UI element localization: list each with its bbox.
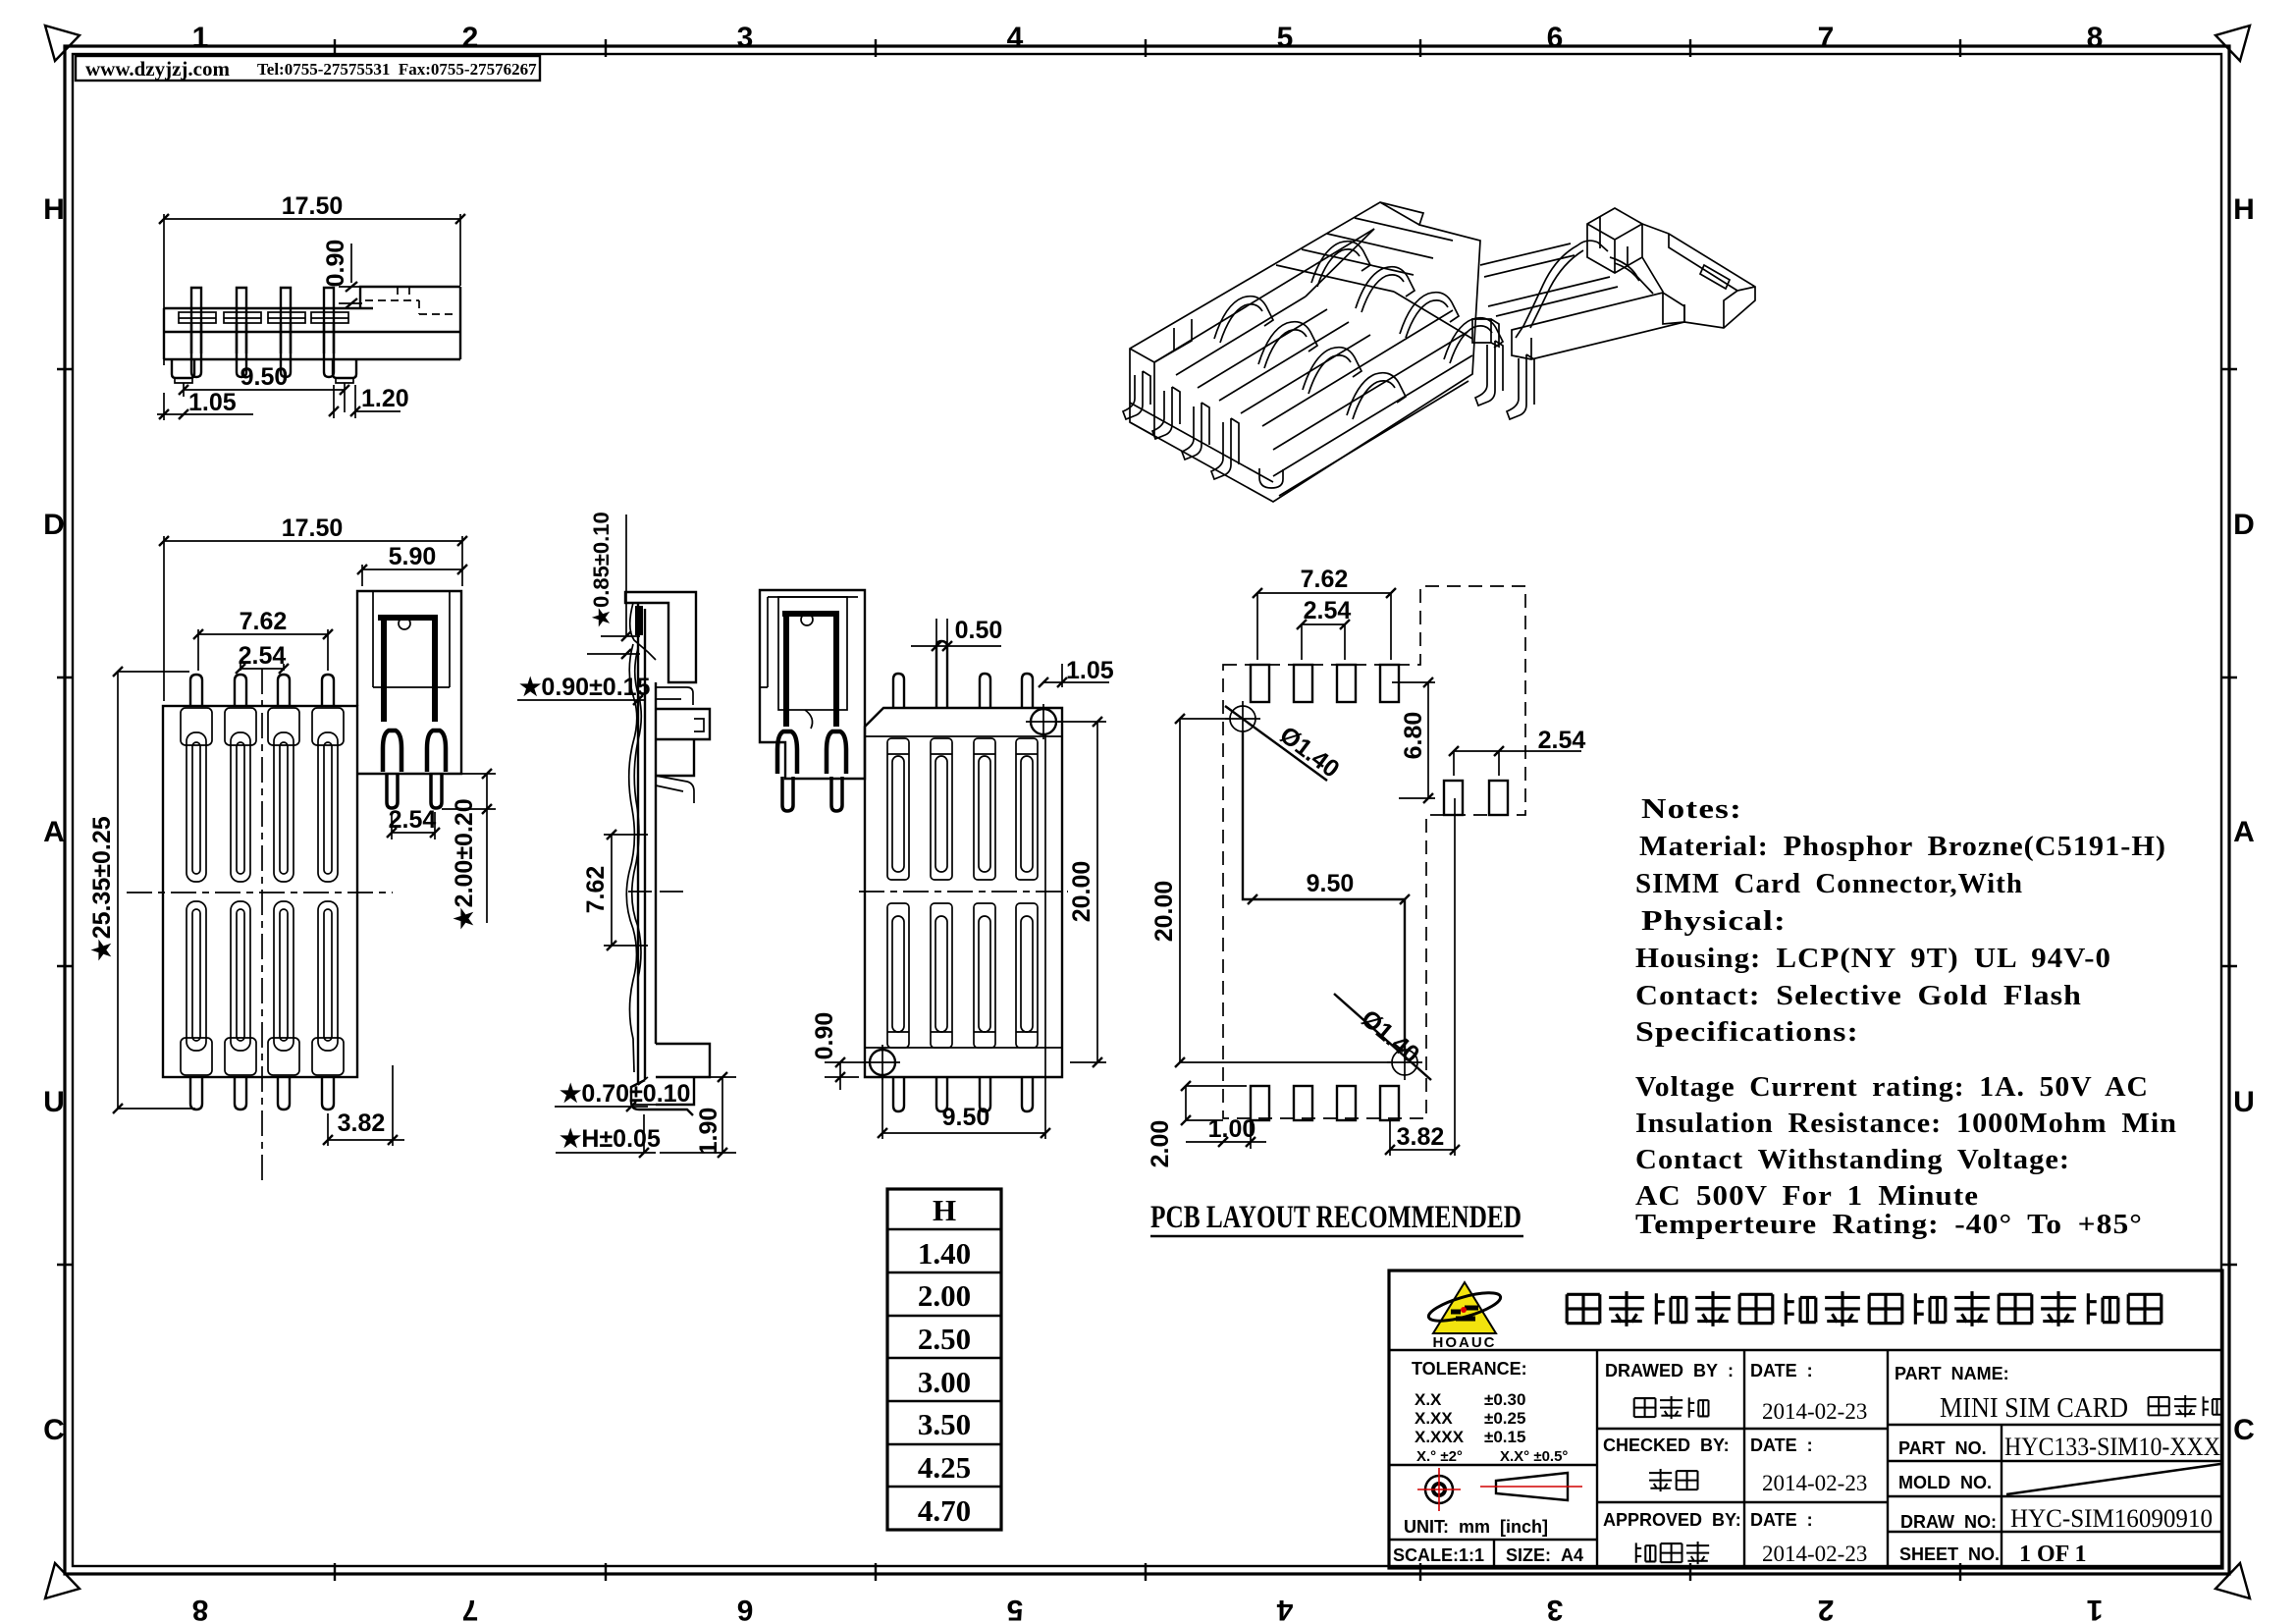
svg-text:7.62: 7.62: [582, 866, 610, 914]
svg-text:DRAWED BY :: DRAWED BY :: [1605, 1361, 1734, 1380]
svg-text:4: 4: [1007, 22, 1024, 54]
svg-text:2.54: 2.54: [1304, 597, 1352, 624]
svg-text:8: 8: [192, 1594, 209, 1624]
svg-text:3.00: 3.00: [918, 1365, 971, 1399]
svg-text:3.50: 3.50: [918, 1407, 971, 1441]
svg-text:2.50: 2.50: [918, 1322, 971, 1356]
svg-text:H: H: [43, 193, 65, 226]
svg-text:HOAUC: HOAUC: [1433, 1334, 1497, 1351]
svg-text:HYC-SIM16090910: HYC-SIM16090910: [2010, 1504, 2213, 1533]
svg-text:1.00: 1.00: [1208, 1115, 1256, 1143]
svg-text:Voltage Current rating: 1A. 50: Voltage Current rating: 1A. 50V AC: [1635, 1071, 2149, 1103]
svg-text:4.25: 4.25: [918, 1450, 971, 1485]
svg-text:9.50: 9.50: [240, 363, 289, 391]
svg-text:DATE :: DATE :: [1750, 1510, 1813, 1530]
svg-text:7: 7: [462, 1594, 479, 1624]
svg-text:3.82: 3.82: [1397, 1123, 1445, 1151]
svg-text:PART NO.: PART NO.: [1898, 1438, 1987, 1458]
svg-text:2.00: 2.00: [918, 1278, 971, 1313]
svg-text:1.20: 1.20: [361, 385, 409, 412]
svg-text:3: 3: [737, 22, 754, 54]
svg-text:6.80: 6.80: [1400, 712, 1427, 760]
svg-text:7: 7: [1818, 22, 1835, 54]
svg-text:SHEET NO.: SHEET NO.: [1899, 1544, 2000, 1564]
svg-text:3: 3: [1547, 1594, 1564, 1624]
svg-text:17.50: 17.50: [282, 192, 344, 220]
svg-text:HYC133-SIM10-XXX: HYC133-SIM10-XXX: [2004, 1433, 2220, 1461]
svg-text:★0.90±0.15: ★0.90±0.15: [519, 674, 651, 701]
svg-text:★25.35±0.25: ★25.35±0.25: [88, 816, 116, 960]
svg-text:C: C: [43, 1414, 65, 1446]
svg-text:2.54: 2.54: [1538, 727, 1586, 754]
svg-text:4: 4: [1276, 1594, 1293, 1624]
svg-text:17.50: 17.50: [282, 514, 344, 542]
svg-text:3.82: 3.82: [338, 1110, 386, 1137]
svg-text:7.62: 7.62: [1301, 566, 1349, 593]
svg-text:www.dzyjzj.com: www.dzyjzj.com: [85, 57, 230, 81]
svg-text:1.40: 1.40: [918, 1236, 971, 1271]
svg-text:5: 5: [1277, 22, 1294, 54]
svg-text:U: U: [43, 1086, 65, 1118]
svg-text:DRAW NO:: DRAW NO:: [1900, 1512, 1997, 1532]
svg-text:Contact Withstanding Voltage:: Contact Withstanding Voltage:: [1635, 1144, 2070, 1175]
svg-text:7.62: 7.62: [240, 608, 288, 635]
svg-text:0.90: 0.90: [322, 240, 349, 288]
svg-text:5.90: 5.90: [389, 543, 437, 570]
svg-text:1.90: 1.90: [695, 1108, 722, 1156]
svg-text:TOLERANCE:: TOLERANCE:: [1412, 1359, 1527, 1379]
svg-text:H: H: [2233, 193, 2255, 226]
svg-text:2014-02-23: 2014-02-23: [1762, 1399, 1867, 1424]
svg-text:2.00: 2.00: [1147, 1120, 1174, 1168]
svg-text:1: 1: [192, 22, 209, 54]
svg-text:0.50: 0.50: [955, 617, 1003, 644]
svg-text:2: 2: [1818, 1594, 1835, 1624]
svg-text:2014-02-23: 2014-02-23: [1762, 1542, 1867, 1566]
svg-text:Temperteure Rating: -40° To +8: Temperteure Rating: -40° To +85°: [1635, 1209, 2143, 1240]
svg-text:D: D: [43, 509, 65, 541]
svg-text:1.05: 1.05: [188, 389, 237, 416]
svg-text:UNIT: mm [inch]: UNIT: mm [inch]: [1404, 1517, 1548, 1537]
svg-text:9.50: 9.50: [1307, 870, 1355, 897]
svg-text:6: 6: [737, 1594, 754, 1624]
svg-text:1.05: 1.05: [1066, 657, 1114, 684]
svg-text:A: A: [43, 816, 65, 848]
svg-text:5: 5: [1007, 1594, 1024, 1624]
svg-text:A: A: [2233, 816, 2255, 848]
svg-text:Insulation Resistance: 1000Moh: Insulation Resistance: 1000Mohm Min: [1635, 1108, 2177, 1139]
svg-text:Contact: Selective Gold Flash: Contact: Selective Gold Flash: [1635, 980, 2082, 1011]
svg-text:DATE :: DATE :: [1750, 1361, 1813, 1380]
svg-text:C: C: [2233, 1414, 2255, 1446]
svg-text:H: H: [933, 1193, 956, 1227]
svg-text:★2.00±0.20: ★2.00±0.20: [451, 798, 478, 929]
svg-text:AC 500V For 1 Minute: AC 500V For 1 Minute: [1635, 1180, 1979, 1212]
svg-text:PCB LAYOUT RECOMMENDED: PCB LAYOUT RECOMMENDED: [1150, 1200, 1522, 1235]
svg-text:MINI SIM CARD: MINI SIM CARD: [1940, 1393, 2128, 1424]
svg-text:DATE :: DATE :: [1750, 1435, 1813, 1455]
svg-text:Tel:0755-27575531 Fax:0755-27: Tel:0755-27575531 Fax:0755-27576267: [257, 60, 537, 79]
svg-text:6: 6: [1547, 22, 1564, 54]
svg-text:Notes:: Notes:: [1641, 793, 1742, 825]
svg-text:4.70: 4.70: [918, 1493, 971, 1528]
svg-text:8: 8: [2087, 22, 2104, 54]
svg-text:APPROVED BY:: APPROVED BY:: [1603, 1510, 1741, 1530]
svg-text:1: 1: [2087, 1594, 2104, 1624]
svg-text:MOLD NO.: MOLD NO.: [1898, 1473, 1992, 1492]
svg-text:1 OF 1: 1 OF 1: [2019, 1542, 2086, 1567]
svg-text:Material: Phosphor Brozne(C519: Material: Phosphor Brozne(C5191-H): [1639, 831, 2166, 862]
svg-text:★0.85±0.10: ★0.85±0.10: [589, 512, 614, 626]
svg-text:0.90: 0.90: [811, 1012, 838, 1060]
svg-text:2.54: 2.54: [239, 642, 287, 670]
svg-text:9.50: 9.50: [942, 1104, 990, 1131]
svg-text:★0.70±0.10: ★0.70±0.10: [560, 1080, 690, 1108]
svg-text:SIZE: A4: SIZE: A4: [1506, 1545, 1583, 1565]
svg-text:SIMM Card Connector,With: SIMM Card Connector,With: [1635, 868, 2023, 899]
svg-text:Physical:: Physical:: [1641, 905, 1787, 937]
svg-text:★H±0.05: ★H±0.05: [560, 1125, 661, 1153]
svg-text:2: 2: [462, 22, 479, 54]
svg-text:20.00: 20.00: [1150, 881, 1178, 943]
svg-text:CHECKED BY:: CHECKED BY:: [1603, 1435, 1730, 1455]
svg-text:PART NAME:: PART NAME:: [1895, 1364, 2009, 1383]
svg-text:D: D: [2233, 509, 2255, 541]
svg-text:SCALE:1:1: SCALE:1:1: [1393, 1545, 1484, 1565]
svg-text:U: U: [2233, 1086, 2255, 1118]
svg-text:20.00: 20.00: [1068, 861, 1095, 923]
svg-text:2014-02-23: 2014-02-23: [1762, 1471, 1867, 1495]
svg-text:Specifications:: Specifications:: [1635, 1016, 1859, 1048]
svg-text:Housing: LCP(NY 9T) UL 94V-0: Housing: LCP(NY 9T) UL 94V-0: [1635, 943, 2111, 974]
